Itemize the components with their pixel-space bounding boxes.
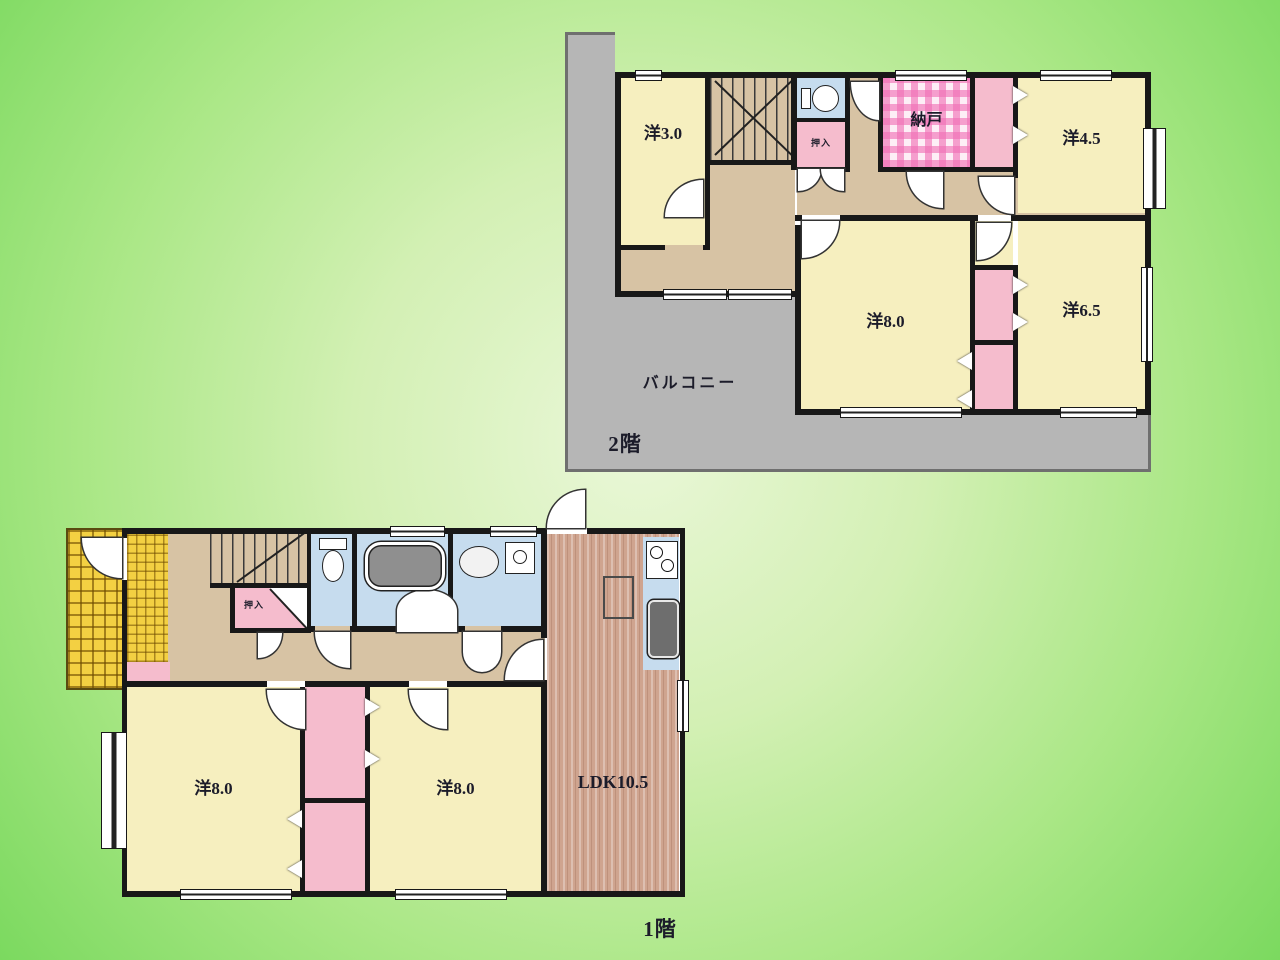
closet-a-2f [975,78,1013,167]
kitchen-island [603,576,634,619]
wall-segment [795,215,802,221]
balcony-sliding-door [728,289,792,300]
closet-label-oshiire-2f: 押入 [797,139,845,149]
toilet-icon [812,85,839,112]
window [635,70,662,81]
window [1040,70,1112,81]
wall-segment [122,681,267,687]
balcony-sliding-door [840,407,962,418]
balcony-label: バルコニー [600,375,780,393]
window [390,526,445,537]
sliding-door-arrow-icon [365,698,380,716]
window [1143,128,1166,209]
sliding-door-arrow-icon [287,810,302,828]
wall-segment [970,265,1018,270]
wall-segment [587,528,685,534]
closet-bottom-1f [305,803,365,891]
floor2-label: 2階 [590,433,660,456]
room-label-yo8-right: 洋8.0 [370,780,541,799]
genkan-tile [127,534,168,662]
balcony-edge [1148,415,1151,472]
balcony-edge [565,469,1151,472]
toilet-icon [319,538,347,550]
door-swing-arc-icon [397,590,457,632]
balcony-edge [565,32,568,472]
sliding-door-arrow-icon [287,860,302,878]
wall-segment [1011,215,1151,221]
room-label-yo8-2f: 洋8.0 [801,313,970,332]
sliding-door-arrow-icon [1013,86,1028,104]
balcony-edge [565,32,615,35]
window [180,889,292,900]
sliding-door-arrow-icon [1013,276,1028,294]
genkan-closet [127,662,170,681]
room-label-yo45: 洋4.5 [1018,130,1145,149]
door-swing-arc-icon [463,632,501,672]
room-label-yo65: 洋6.5 [1018,302,1145,321]
window [101,732,127,849]
wall-segment [710,160,795,165]
toilet-icon [801,88,811,109]
sliding-door-arrow-icon [957,390,972,408]
window [895,70,967,81]
balcony-sliding-door [663,289,727,300]
sliding-door-arrow-icon [957,352,972,370]
toilet-icon [322,550,344,582]
washing-machine-icon [513,550,527,564]
balcony-sliding-door [1060,407,1137,418]
wall-segment [122,528,547,534]
room-yo3 [621,78,705,245]
wall-segment [122,528,127,538]
wall-segment [621,245,665,250]
closet-b-bottom-2f [975,345,1013,409]
floor1-label: 1階 [615,918,705,941]
wall-segment [447,681,545,687]
wall-segment [615,72,621,297]
wall-segment [210,583,311,588]
wall-segment [1145,72,1151,415]
wall-segment [352,528,357,632]
room-label-ldk: LDK10.5 [547,773,679,793]
wall-segment [541,528,547,638]
room-label-nando: 納戸 [883,112,970,130]
wall-segment [305,681,409,687]
wall-segment [845,72,850,172]
wall-segment [307,528,311,633]
back-door-arc-icon [547,490,585,528]
floorplan-page: { "floor2": { "floor_label": "2階", "balc… [0,0,1280,960]
kitchen-sink-icon [648,600,679,658]
window [677,680,689,732]
stove-icon [661,559,674,572]
sink-icon [459,546,499,578]
room-label-yo3: 洋3.0 [621,125,705,144]
wall-segment [970,72,975,172]
wall-segment [703,245,710,250]
sliding-door-arrow-icon [365,750,380,768]
wall-segment [840,215,978,221]
wall-segment [300,798,370,803]
window [490,526,537,537]
wall-segment [501,626,541,632]
wall-segment [970,340,1018,345]
closet-label-oshiire-1f: 押入 [233,601,275,611]
stove-icon [650,546,663,559]
wall-segment [797,118,845,122]
wall-segment [975,167,1013,172]
wall-segment [970,221,975,415]
closet-b-top-2f [975,270,1013,340]
window [395,889,507,900]
closet-top-1f [305,687,365,798]
floor2-plan: 洋3.0 納戸 洋4.5 洋8.0 洋6.5 押入 バルコニー 2階 [565,30,1175,480]
room-label-yo8-left: 洋8.0 [127,780,300,799]
floor1-plan: 押入 洋8.0 洋8.0 LDK10.5 1階 [65,488,705,960]
wall-segment [350,626,397,632]
bathtub-icon [365,542,445,590]
